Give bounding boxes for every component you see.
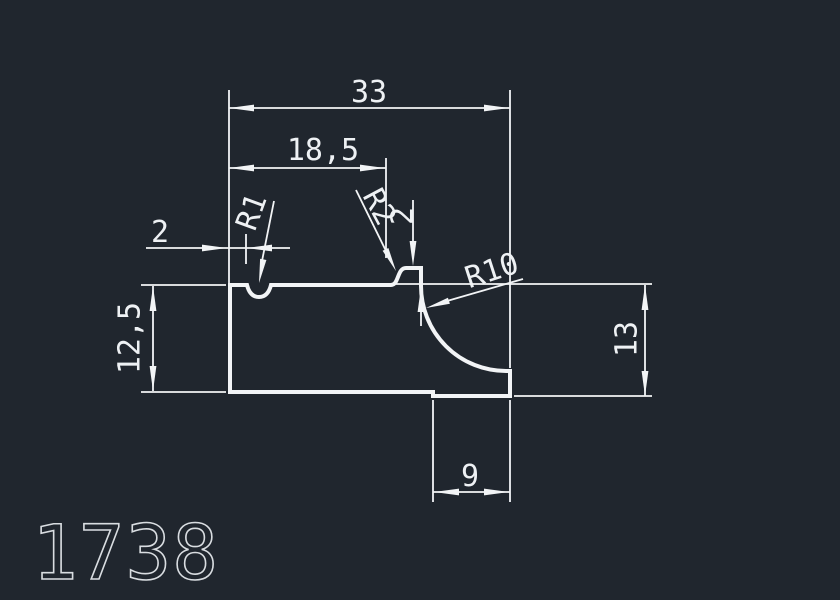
dim-label-groove-offset: 2 bbox=[151, 215, 169, 250]
leader-arrowhead-icon bbox=[383, 248, 396, 271]
radius-callout-cove: R10 bbox=[426, 246, 523, 308]
arrowhead-down-icon bbox=[642, 371, 649, 396]
arrowhead-right-icon bbox=[484, 489, 509, 496]
arrowhead-right-icon bbox=[202, 245, 227, 252]
dimension-right-height: 13 bbox=[393, 284, 652, 396]
dim-label-foot-width: 9 bbox=[461, 459, 479, 494]
dimension-groove-offset: 2 bbox=[146, 215, 290, 264]
arrowhead-left-icon bbox=[247, 245, 272, 252]
arrowhead-right-icon bbox=[360, 165, 385, 172]
arrowhead-left-icon bbox=[434, 489, 459, 496]
radius-callout-step-fillet: R2 bbox=[355, 183, 403, 271]
leader-arrowhead-icon bbox=[426, 298, 450, 308]
arrowhead-right-icon bbox=[484, 105, 509, 112]
dim-label-upper-width: 18,5 bbox=[287, 133, 359, 168]
arrowhead-up-icon bbox=[642, 285, 649, 310]
arrowhead-down-icon bbox=[150, 366, 157, 391]
dimension-left-height: 12,5 bbox=[113, 285, 227, 392]
radius-callout-groove: R1 bbox=[229, 189, 274, 283]
radius-label-cove: R10 bbox=[461, 246, 523, 296]
dimension-foot-width: 9 bbox=[433, 400, 510, 502]
dim-label-overall-width: 33 bbox=[351, 75, 387, 110]
arrowhead-left-icon bbox=[229, 105, 254, 112]
arrowhead-up-icon bbox=[150, 286, 157, 311]
arrowhead-left-icon bbox=[229, 165, 254, 172]
dim-label-left-height: 12,5 bbox=[113, 302, 148, 374]
dim-label-right-height: 13 bbox=[610, 321, 645, 357]
cad-drawing-canvas: 33 18,5 2 R1 R2 bbox=[0, 0, 840, 600]
leader-arrowhead-icon bbox=[259, 259, 266, 283]
arrowhead-down-icon bbox=[410, 241, 417, 266]
part-number: 1738 bbox=[32, 508, 219, 597]
profile-drawing-1738: 33 18,5 2 R1 R2 bbox=[0, 0, 840, 600]
dim-label-step-height: 2 bbox=[386, 207, 421, 225]
